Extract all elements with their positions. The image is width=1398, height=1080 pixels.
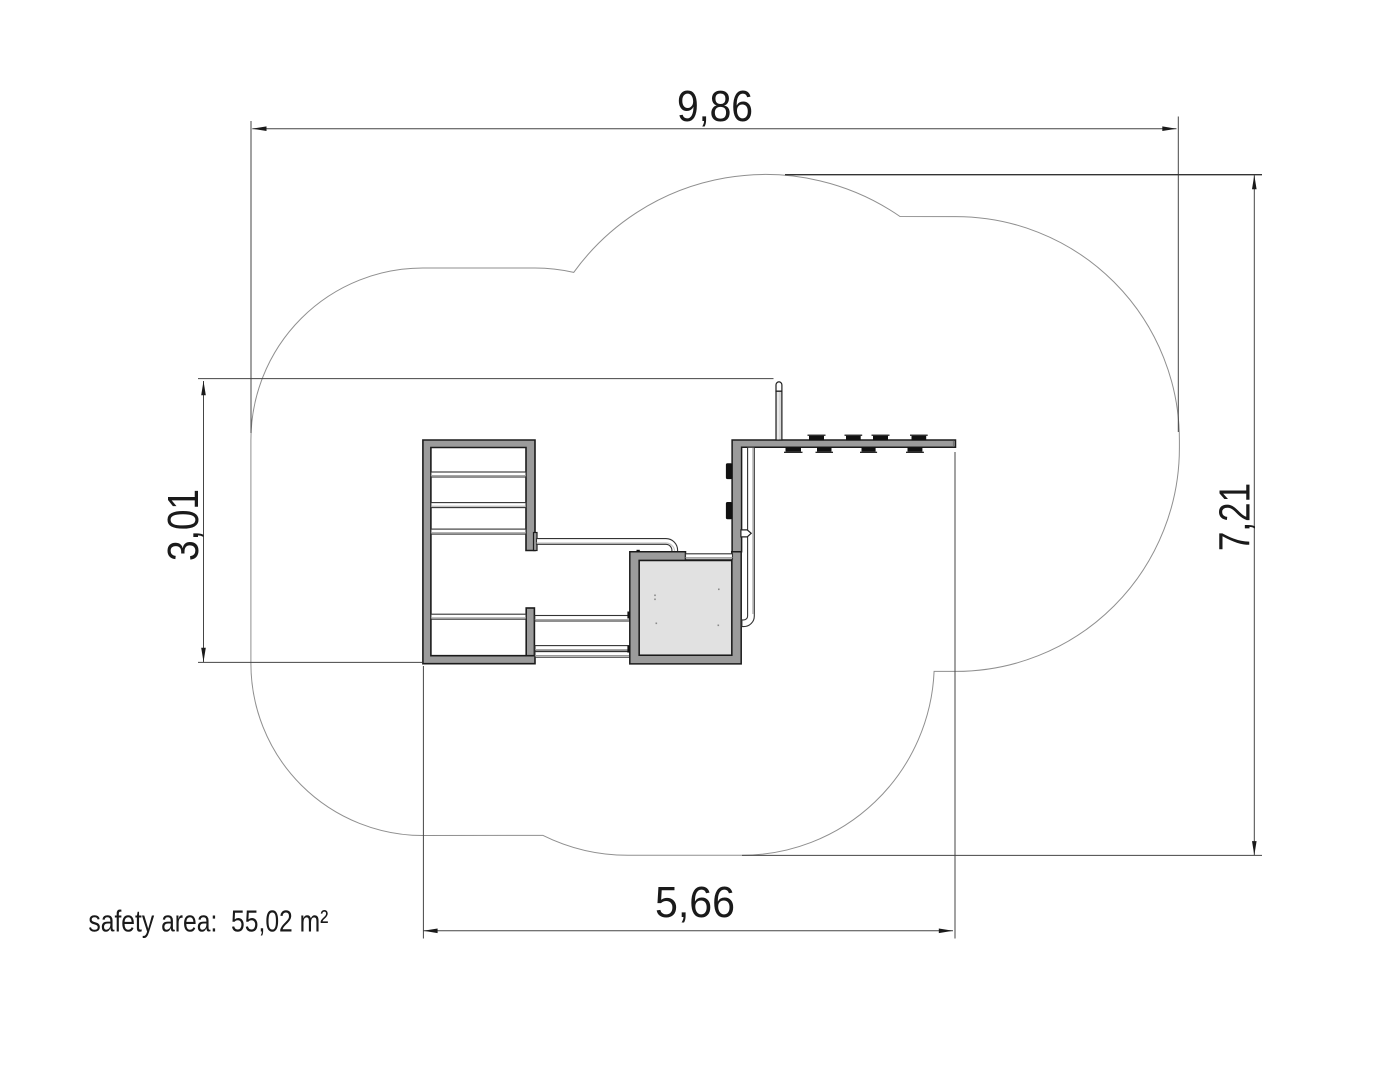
svg-text:5,66: 5,66 xyxy=(655,878,735,927)
svg-text:safety area: 55,02 m²: safety area: 55,02 m² xyxy=(88,904,328,939)
svg-text:3,01: 3,01 xyxy=(159,489,208,561)
svg-text:7,21: 7,21 xyxy=(1211,483,1260,551)
svg-text:9,86: 9,86 xyxy=(677,82,753,131)
